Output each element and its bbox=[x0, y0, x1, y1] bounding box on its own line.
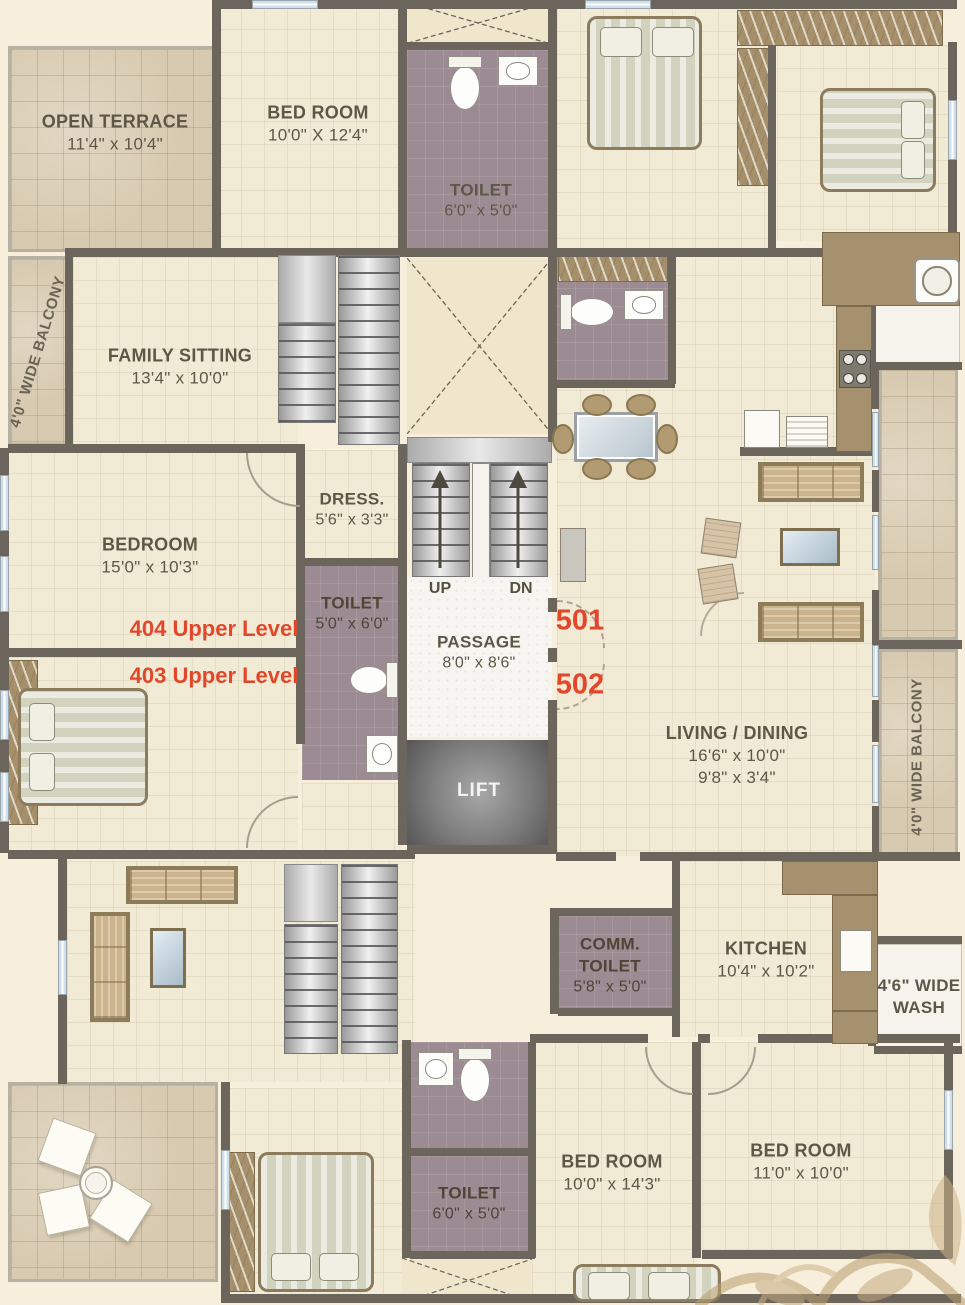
level-label-404: 404 Upper Level bbox=[130, 616, 299, 642]
side-table bbox=[697, 563, 738, 604]
wall-segment bbox=[558, 908, 672, 916]
dining-chair bbox=[626, 394, 656, 416]
wall-segment bbox=[548, 252, 557, 442]
window bbox=[872, 515, 879, 570]
wash-basin bbox=[498, 56, 538, 86]
stair-flight-bottom-2 bbox=[341, 864, 398, 1054]
wall-segment bbox=[874, 936, 962, 944]
wall-segment bbox=[8, 850, 415, 859]
wall-segment bbox=[410, 1251, 535, 1259]
kitchen-sink bbox=[744, 410, 780, 448]
floor-plan: OPEN TERRACE 11'4" x 10'4" 4'0" WIDE BAL… bbox=[0, 0, 965, 1305]
room-label-living-dining: LIVING / DINING 16'6" x 10'0" 9'8" x 3'4… bbox=[666, 722, 809, 790]
stairs-dn-label: DN bbox=[509, 580, 532, 598]
wall-segment bbox=[398, 444, 407, 845]
window bbox=[0, 475, 9, 531]
wall-segment bbox=[302, 558, 402, 566]
wall-segment bbox=[557, 380, 675, 388]
room-label-bedroom-bottommid: BED ROOM 10'0" x 14'3" bbox=[561, 1150, 662, 1195]
window bbox=[872, 412, 879, 467]
stair-flight-bottom-1 bbox=[284, 924, 338, 1054]
bed bbox=[258, 1152, 374, 1292]
stair-flight bbox=[338, 255, 400, 445]
wardrobe bbox=[558, 254, 668, 282]
wall-segment bbox=[398, 42, 556, 50]
kitchen-counter bbox=[782, 861, 878, 895]
toilet-tank bbox=[560, 294, 572, 330]
room-label-passage: PASSAGE 8'0" x 8'6" bbox=[437, 632, 521, 675]
dining-chair bbox=[582, 394, 612, 416]
window bbox=[948, 100, 957, 160]
room-label-balcony-right: 4'0" WIDE BALCONY bbox=[907, 678, 927, 836]
room-label-bedroom-left: BEDROOM 15'0" x 10'3" bbox=[101, 533, 198, 578]
room-label-bedroom-bottomright: BED ROOM 11'0" x 10'0" bbox=[750, 1139, 851, 1184]
wall-segment bbox=[548, 648, 557, 662]
toilet-tank bbox=[458, 1048, 492, 1060]
sofa bbox=[126, 866, 238, 904]
room-label-kitchen: KITCHEN 10'4" x 10'2" bbox=[717, 937, 814, 982]
room-label-lift: LIFT bbox=[457, 780, 501, 802]
kitchen-platform bbox=[786, 416, 828, 448]
unit-label-502: 502 bbox=[556, 669, 604, 702]
wall-segment bbox=[872, 470, 879, 512]
toilet-tank bbox=[448, 56, 482, 68]
wash-counter bbox=[832, 1011, 878, 1044]
wardrobe bbox=[737, 10, 943, 46]
toilet-tank bbox=[386, 662, 398, 698]
dining-table bbox=[574, 412, 658, 462]
wall-segment bbox=[768, 45, 776, 250]
lobby-lowerleft bbox=[302, 783, 402, 853]
wall-segment bbox=[528, 1042, 536, 1258]
console bbox=[560, 528, 586, 582]
wall-segment bbox=[410, 1148, 528, 1156]
window bbox=[252, 0, 318, 9]
window bbox=[585, 0, 651, 9]
tv-unit bbox=[780, 528, 840, 566]
toilet-wc bbox=[460, 1058, 490, 1102]
wall-segment bbox=[8, 648, 300, 657]
stairs-up-arrow bbox=[426, 468, 454, 572]
room-label-bedroom-top: BED ROOM 10'0" X 12'4" bbox=[267, 101, 368, 146]
stairs-up-label: UP bbox=[429, 580, 451, 598]
room-label-comm-toilet: COMM. TOILET 5'8" x 5'0" bbox=[573, 934, 646, 999]
room-label-family-sitting: FAMILY SITTING 13'4" x 10'0" bbox=[108, 344, 252, 389]
wall-segment bbox=[668, 252, 676, 384]
stair-landing-bottom bbox=[284, 864, 338, 922]
sofa bbox=[90, 912, 130, 1022]
bed bbox=[587, 16, 702, 150]
room-label-dress: DRESS. 5'6" x 3'3" bbox=[315, 489, 388, 532]
side-table bbox=[701, 518, 742, 559]
window bbox=[0, 556, 9, 612]
room-label-wash: 4'6" WIDE WASH bbox=[878, 975, 961, 1019]
wall-segment bbox=[398, 0, 407, 252]
window bbox=[0, 772, 9, 822]
window bbox=[0, 690, 9, 740]
washing-machine bbox=[914, 258, 960, 304]
stairs-dn-arrow bbox=[504, 468, 532, 572]
dining-chair bbox=[582, 458, 612, 480]
room-label-toilet-top: TOILET 6'0" x 5'0" bbox=[444, 180, 517, 223]
wardrobe bbox=[737, 48, 771, 186]
wall-segment bbox=[872, 640, 962, 649]
wall-segment bbox=[8, 444, 300, 453]
dining-chair bbox=[626, 458, 656, 480]
stair-rail bbox=[472, 463, 490, 579]
wash-basin bbox=[366, 735, 398, 773]
stair-landing bbox=[407, 437, 552, 463]
wall-segment bbox=[874, 362, 962, 370]
gas-stove bbox=[839, 350, 871, 388]
window bbox=[872, 645, 879, 697]
dining-chair bbox=[656, 424, 678, 454]
window bbox=[221, 1150, 230, 1210]
tv-unit bbox=[150, 928, 186, 988]
unit-label-501: 501 bbox=[556, 605, 604, 638]
balcony-right-top bbox=[878, 367, 958, 640]
toilet-wc bbox=[350, 666, 388, 694]
wall-segment bbox=[530, 1034, 648, 1043]
level-label-403: 403 Upper Level bbox=[130, 663, 299, 689]
wall-segment bbox=[548, 700, 557, 845]
toilet-wc bbox=[570, 298, 614, 326]
wash-basin bbox=[624, 290, 664, 320]
bed bbox=[820, 88, 936, 192]
room-label-open-terrace: OPEN TERRACE 11'4" x 10'4" bbox=[42, 110, 189, 155]
round-table bbox=[79, 1166, 113, 1200]
wall-segment bbox=[407, 845, 557, 854]
wall-segment bbox=[548, 0, 557, 256]
window bbox=[872, 745, 879, 803]
wall-segment bbox=[672, 861, 680, 1037]
wall-segment bbox=[872, 806, 879, 856]
wall-segment bbox=[550, 908, 559, 1014]
stair-flight bbox=[278, 323, 336, 423]
wall-segment bbox=[558, 1008, 672, 1016]
room-label-toilet-bottom: TOILET 6'0" x 5'0" bbox=[432, 1183, 505, 1226]
bed bbox=[18, 688, 148, 806]
wall-segment bbox=[556, 852, 616, 861]
window bbox=[58, 940, 67, 995]
sofa bbox=[758, 462, 864, 502]
stair-landing bbox=[278, 255, 336, 323]
wash-basin bbox=[418, 1052, 454, 1086]
duct-shaft-mid bbox=[407, 258, 552, 434]
kitchen-sink bbox=[840, 930, 872, 972]
wall-segment bbox=[212, 0, 221, 252]
sofa bbox=[758, 602, 864, 642]
dining-chair bbox=[552, 424, 574, 454]
wall-segment bbox=[872, 367, 879, 409]
wall-segment bbox=[640, 852, 960, 861]
room-label-toilet-mid: TOILET 5'0" x 6'0" bbox=[315, 593, 388, 636]
wall-segment bbox=[872, 590, 879, 640]
toilet-wc bbox=[450, 66, 480, 110]
wall-segment bbox=[872, 700, 879, 742]
